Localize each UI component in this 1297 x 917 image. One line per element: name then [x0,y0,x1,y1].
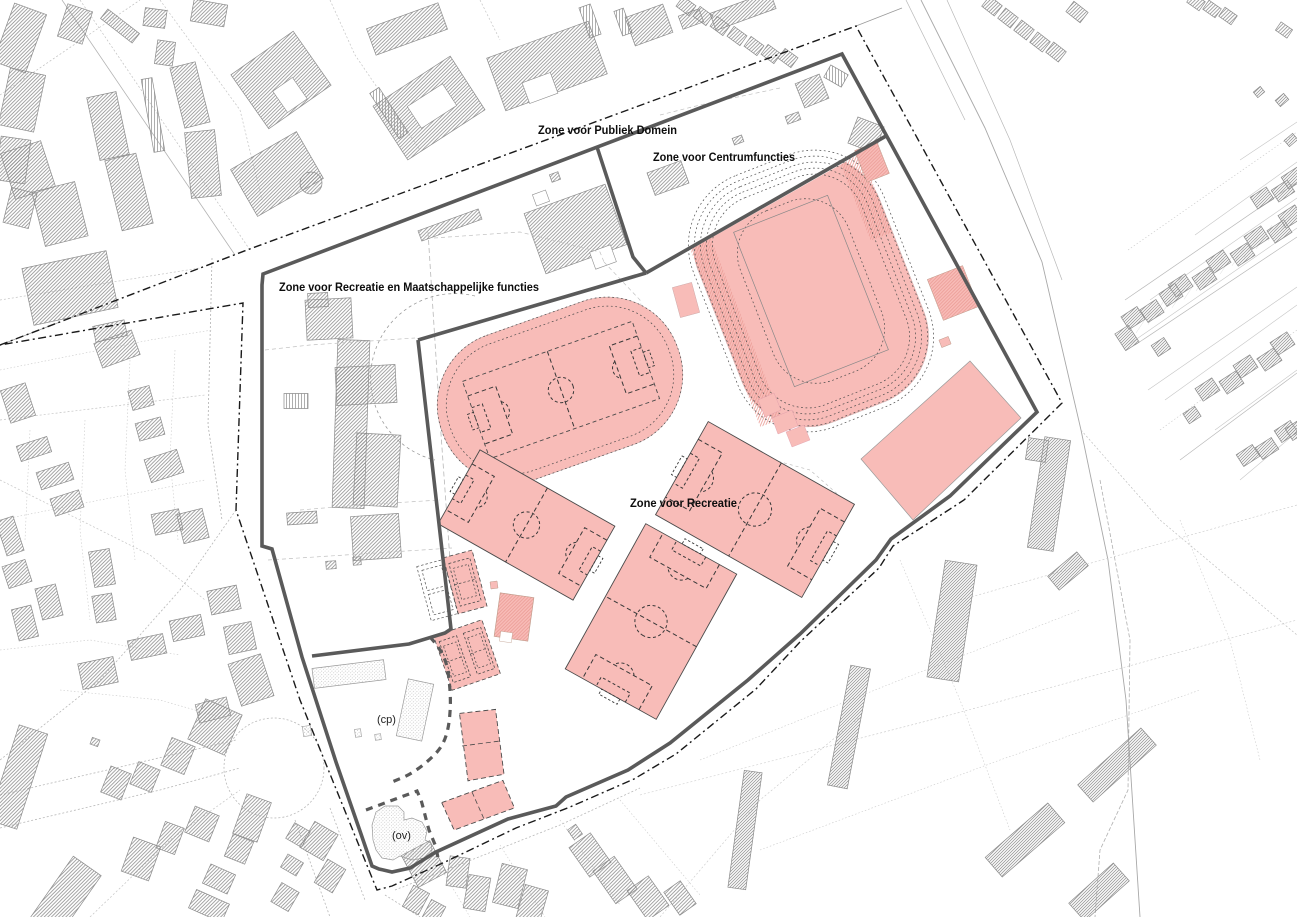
svg-text:Zone voor Centrumfuncties: Zone voor Centrumfuncties [653,152,795,164]
svg-text:Zone voor Publiek Domein: Zone voor Publiek Domein [538,125,677,137]
svg-text:(ov): (ov) [392,830,411,842]
svg-text:(cp): (cp) [377,714,396,726]
svg-text:Zone voor Recreatie en Maatsch: Zone voor Recreatie en Maatschappelijke … [279,282,539,294]
svg-text:Zone voor Recreatie: Zone voor Recreatie [630,498,737,510]
